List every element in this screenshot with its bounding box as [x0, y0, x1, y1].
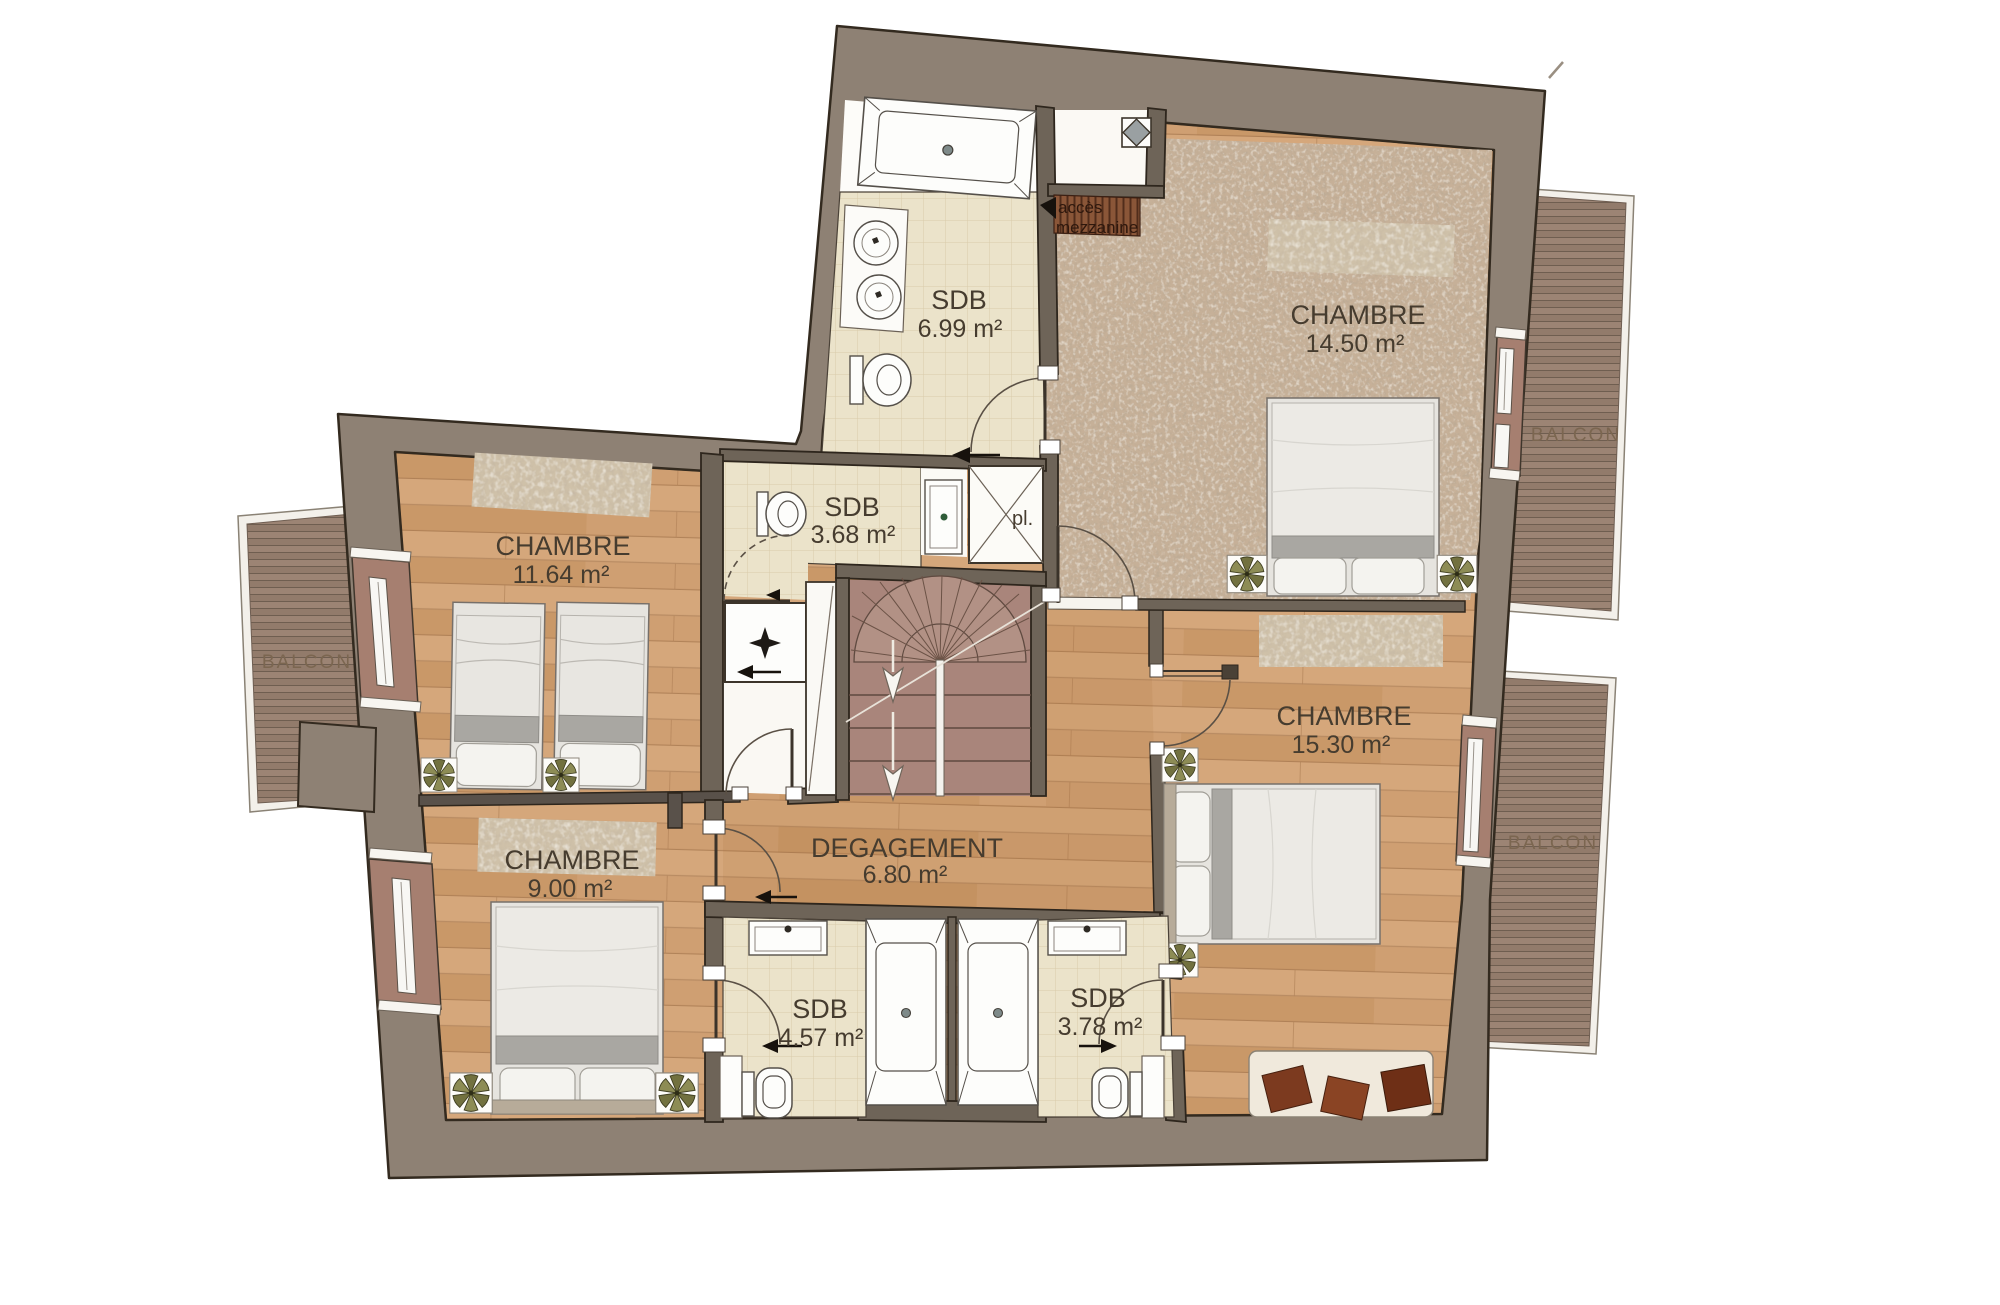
svg-text:15.30 m²: 15.30 m²: [1292, 731, 1391, 759]
svg-text:CHAMBRE: CHAMBRE: [1276, 701, 1411, 731]
svg-text:mezzanine: mezzanine: [1056, 218, 1138, 237]
svg-text:4.57 m²: 4.57 m²: [779, 1024, 864, 1052]
svg-text:6.99 m²: 6.99 m²: [918, 315, 1003, 343]
svg-text:CHAMBRE: CHAMBRE: [1290, 300, 1425, 330]
svg-text:BALCON: BALCON: [1508, 833, 1598, 854]
svg-text:BALCON: BALCON: [1531, 425, 1621, 446]
svg-text:CHAMBRE: CHAMBRE: [504, 845, 639, 875]
svg-text:14.50 m²: 14.50 m²: [1306, 330, 1405, 358]
svg-text:DEGAGEMENT: DEGAGEMENT: [811, 833, 1003, 863]
svg-text:accès: accès: [1058, 198, 1102, 217]
svg-text:SDB: SDB: [931, 285, 987, 315]
svg-text:SDB: SDB: [824, 492, 880, 522]
svg-text:6.80 m²: 6.80 m²: [863, 861, 948, 889]
svg-text:3.78 m²: 3.78 m²: [1058, 1013, 1143, 1041]
svg-text:SDB: SDB: [1070, 983, 1126, 1013]
svg-text:pl.: pl.: [1012, 508, 1033, 530]
svg-text:SDB: SDB: [792, 994, 848, 1024]
svg-text:BALCON: BALCON: [262, 652, 352, 673]
svg-text:9.00 m²: 9.00 m²: [528, 875, 613, 903]
svg-text:11.64 m²: 11.64 m²: [513, 561, 610, 589]
svg-text:3.68 m²: 3.68 m²: [811, 521, 896, 549]
svg-text:CHAMBRE: CHAMBRE: [495, 531, 630, 561]
